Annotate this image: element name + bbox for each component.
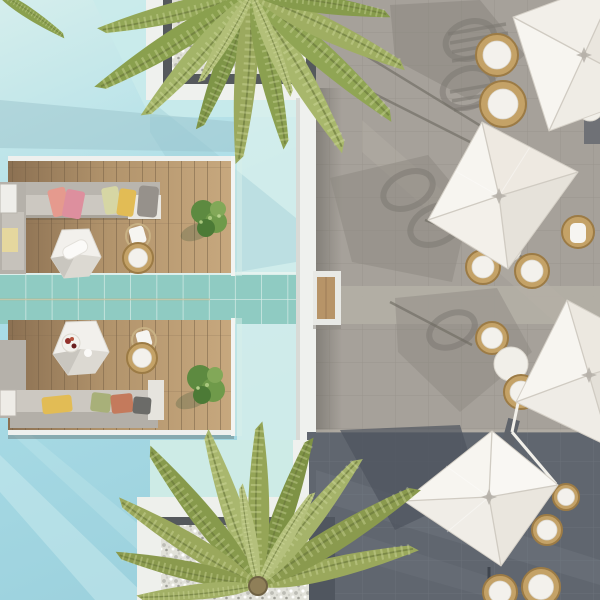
upper-deck-glass-rail-right [231, 156, 235, 276]
pillow-yellow-lower [41, 394, 73, 414]
upper-rattan-chair [123, 243, 153, 273]
pool-coping-shade [296, 98, 300, 498]
pillow-dark-grey [132, 396, 151, 415]
pillow-white-diamond-lower [0, 390, 16, 416]
pillow-grey-knit [137, 185, 160, 218]
lower-sofa-back [10, 412, 158, 428]
lower-deck-edge-shadow [8, 435, 234, 439]
lower-deck-glass-rail-right [231, 318, 235, 436]
upper-deck-glass-tint [235, 156, 242, 276]
walkway-tan-joint [0, 299, 210, 301]
palm-trunk [249, 577, 267, 595]
pillow-pale-yellow [2, 228, 18, 252]
upper-sofa-back [10, 182, 160, 197]
lower-chair-cushion [133, 349, 152, 368]
pillow-white-diamond [0, 184, 17, 213]
lower-deck [0, 318, 242, 439]
pool-terrace-photo: Aerial top-down view of a resort pool te… [0, 0, 600, 600]
lower-deck-glass-rail-bottom [8, 430, 234, 435]
upper-deck-glass-rail-top [8, 156, 234, 161]
pillow-terracotta [110, 393, 134, 414]
aerial-scene: Aerial top-down view of a resort pool te… [0, 0, 600, 600]
pillow-sage [90, 392, 112, 413]
tiled-walkway [0, 272, 315, 324]
upper-chair-cushion [129, 249, 148, 268]
lower-deck-glass-tint [235, 318, 242, 436]
lower-rattan-chair [127, 343, 157, 373]
lower-table-tray [62, 334, 80, 352]
lower-table-cup [84, 349, 92, 357]
pool-step [313, 271, 341, 329]
upper-deck [0, 156, 242, 278]
